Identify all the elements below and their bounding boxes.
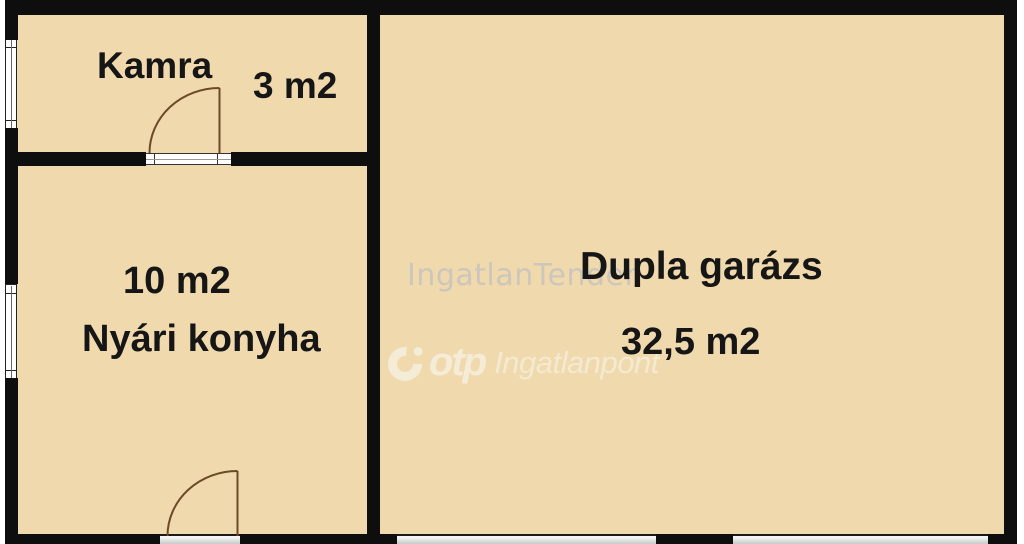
wall-left-lower xyxy=(5,378,18,544)
otp-logo-icon xyxy=(386,343,424,381)
wall-right xyxy=(1004,0,1017,544)
wall-bottom-1 xyxy=(5,534,160,544)
wall-left-middle xyxy=(5,128,18,284)
garage-door-opening-right xyxy=(733,534,988,544)
room-label: Nyári konyha xyxy=(82,320,321,358)
area-label: 10 m2 xyxy=(123,262,231,300)
wall-divider-vertical xyxy=(367,15,380,544)
wall-top xyxy=(5,0,1017,15)
wall-bottom-2 xyxy=(240,534,397,544)
door-threshold-konyha xyxy=(160,534,240,544)
wall-left-upper xyxy=(5,0,18,40)
garage-door-opening-left xyxy=(397,534,656,544)
wall-bottom-3 xyxy=(656,534,733,544)
door-threshold-kamra xyxy=(145,153,232,165)
wall-bottom-4 xyxy=(988,534,1017,544)
floor-plan: IngatlanTender otp Ingatlanpont xyxy=(0,0,1024,544)
area-label: 32,5 m2 xyxy=(621,323,760,361)
wall-kamra-right xyxy=(231,152,367,166)
room-label: Dupla garázs xyxy=(580,247,823,286)
brand-watermark: otp Ingatlanpont xyxy=(386,342,659,382)
window-icon xyxy=(5,284,17,380)
window-icon xyxy=(5,38,17,130)
room-label: Kamra xyxy=(97,47,212,84)
wall-kamra-left xyxy=(18,152,146,166)
area-label: 3 m2 xyxy=(253,67,337,104)
brand-watermark-text: otp xyxy=(429,342,485,382)
